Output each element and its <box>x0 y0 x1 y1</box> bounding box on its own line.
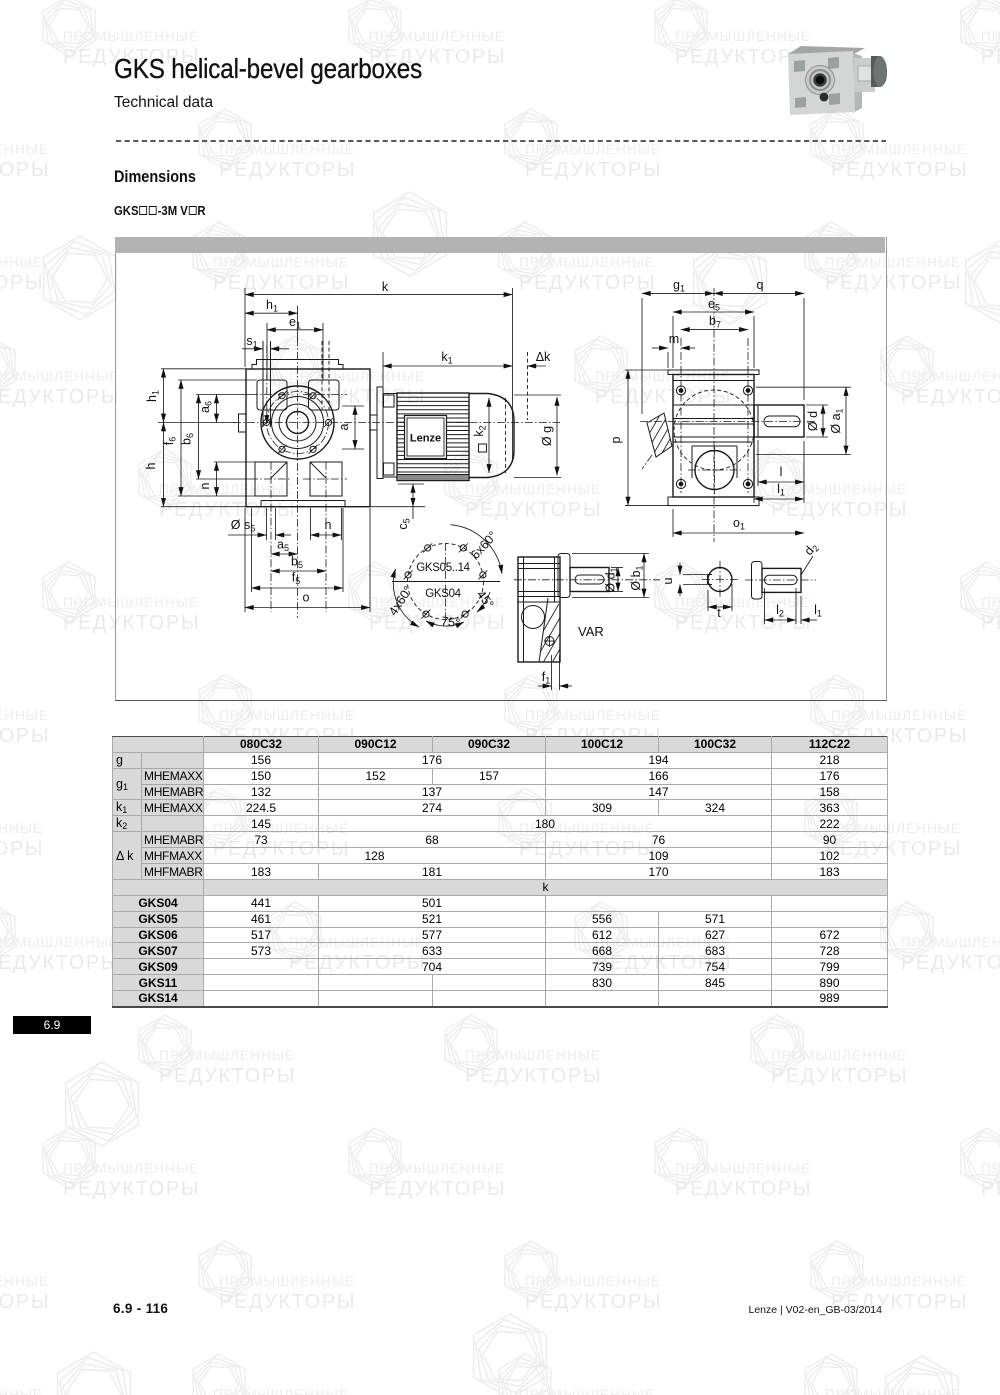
svg-text:l: l <box>780 465 783 479</box>
svg-text:f6: f6 <box>162 437 178 446</box>
svg-text:a: a <box>337 423 351 430</box>
svg-text:e1: e1 <box>289 315 301 331</box>
svg-text:4x60°: 4x60° <box>386 584 415 619</box>
svg-text:a5: a5 <box>277 538 289 554</box>
svg-text:75°: 75° <box>440 614 461 630</box>
svg-text:l1: l1 <box>814 603 822 619</box>
svg-text:Lenze: Lenze <box>410 433 441 445</box>
svg-text:p: p <box>609 436 623 443</box>
svg-text:h: h <box>144 462 158 469</box>
svg-text:a6: a6 <box>198 401 214 413</box>
svg-text:l1: l1 <box>777 482 785 498</box>
svg-text:b7: b7 <box>709 314 721 330</box>
svg-text:o1: o1 <box>733 516 745 532</box>
svg-text:VAR: VAR <box>578 624 604 639</box>
svg-text:GKS04: GKS04 <box>425 588 461 600</box>
svg-text:e5: e5 <box>708 297 720 313</box>
svg-text:Ø d1: Ø d1 <box>604 567 620 592</box>
svg-text:k2: k2 <box>472 425 488 436</box>
svg-text:GKS05..14: GKS05..14 <box>416 562 470 574</box>
svg-text:u: u <box>661 577 675 584</box>
svg-text:Δk: Δk <box>536 350 551 364</box>
svg-text:n: n <box>325 518 332 532</box>
svg-text:t: t <box>717 606 721 620</box>
svg-text:b6: b6 <box>180 433 196 445</box>
svg-text:h1: h1 <box>145 390 161 402</box>
svg-text:b5: b5 <box>291 555 303 571</box>
svg-text:d2: d2 <box>802 540 822 559</box>
svg-text:q: q <box>757 278 764 292</box>
svg-text:c5: c5 <box>396 518 412 529</box>
svg-text:45°: 45° <box>474 588 497 612</box>
svg-text:f1: f1 <box>542 670 551 686</box>
svg-text:k: k <box>382 280 389 294</box>
svg-text:s1: s1 <box>246 334 257 350</box>
svg-text:n: n <box>198 482 212 489</box>
svg-text:o: o <box>303 591 310 605</box>
svg-text:m: m <box>669 332 679 346</box>
svg-text:6x60°: 6x60° <box>468 529 500 562</box>
svg-text:l2: l2 <box>776 603 784 619</box>
svg-text:Ø g: Ø g <box>540 426 554 446</box>
svg-text:k1: k1 <box>441 350 452 366</box>
svg-text:Ø b1: Ø b1 <box>629 565 645 590</box>
svg-text:h1: h1 <box>266 298 278 314</box>
svg-text:f5: f5 <box>292 571 301 587</box>
svg-text:g1: g1 <box>673 278 685 294</box>
svg-text:Ø d: Ø d <box>806 411 820 431</box>
svg-text:Ø a1: Ø a1 <box>829 408 845 433</box>
